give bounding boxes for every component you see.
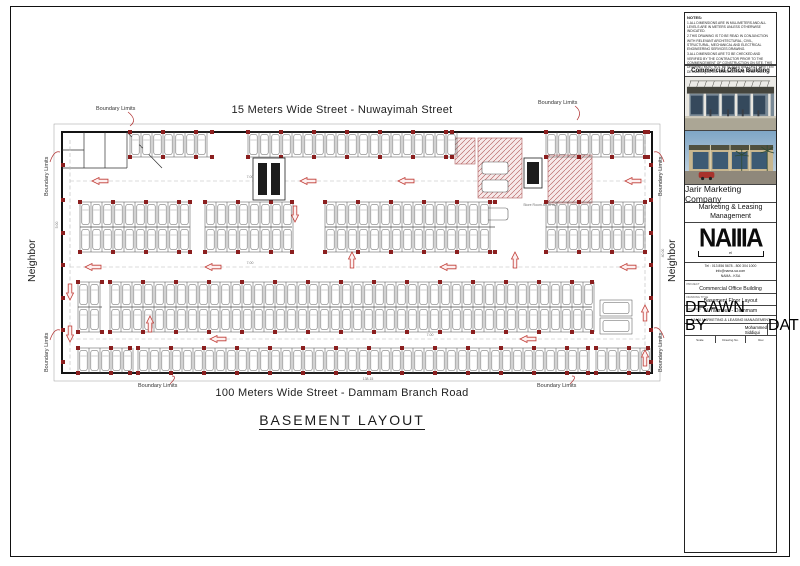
date-cell: DATE 12 Oct 2020 (767, 324, 800, 335)
drawn-value: Mohammed Siddiqui (745, 325, 767, 335)
svg-text:7.00: 7.00 (427, 333, 434, 337)
svg-text:5.00: 5.00 (55, 222, 59, 229)
company-name: Jarir Marketing Company (685, 185, 776, 203)
date-label: DATE (768, 317, 800, 335)
side-parking-stalls (600, 300, 632, 334)
basement-plan-svg: 138.1540.007.007.007.005.00Store Room A=… (0, 0, 800, 566)
boundary-label-right-upper: Boundary Limits (658, 157, 664, 196)
contact-box: Tel : 013 856 5678 - 800 304 1000 info@n… (685, 263, 776, 281)
svg-text:138.15: 138.15 (363, 377, 374, 381)
drawing-title-text: BASEMENT LAYOUT (259, 412, 425, 430)
project-label: PROJECT (687, 282, 700, 286)
boundary-label-top-right: Boundary Limits (538, 100, 577, 106)
footer-row: Scale Drawing No. Rev. (685, 336, 776, 343)
boundary-label-top-left: Boundary Limits (96, 106, 135, 112)
titleblock: NOTES: 1.ALL DIMENSIONS ARE IN MILLIMETE… (684, 12, 777, 553)
department-name: Marketing & Leasing Management (685, 203, 776, 223)
boundary-label-bottom-right: Boundary Limits (537, 383, 576, 389)
notes-box: NOTES: 1.ALL DIMENSIONS ARE IN MILLIMETE… (685, 13, 776, 65)
nama-logo-underline: el (698, 251, 764, 257)
neighbor-label-right: Neighbor (666, 239, 678, 282)
neighbor-label-left: Neighbor (26, 239, 38, 282)
drawn-cell: DRAWN BY Mohammed Siddiqui (685, 324, 767, 335)
nama-logo-text: NAIIIA (699, 227, 762, 250)
svg-text:7.00: 7.00 (247, 175, 254, 179)
nama-logo: NAIIIA el (685, 223, 776, 263)
boundary-label-left-lower: Boundary Limits (44, 333, 50, 372)
notes-title: NOTES: (687, 15, 774, 20)
boundary-label-bottom-left: Boundary Limits (138, 383, 177, 389)
svg-text:7.00: 7.00 (247, 261, 254, 265)
footer-rev: Rev. (745, 336, 776, 343)
contact-web: NAMA - KSA (721, 274, 740, 279)
svg-text:Store Room A=70 m2: Store Room A=70 m2 (523, 203, 557, 207)
building-render-2-image (685, 131, 776, 184)
building-render-1 (685, 77, 776, 131)
renders-header: Commercial Office Building (685, 66, 776, 77)
nama-logo-sub: el (727, 251, 734, 255)
note-item: 2.THIS DRAWING IS TO BE READ IN CONJUNCT… (687, 34, 774, 51)
bottom-street-label: 100 Meters Wide Street - Dammam Branch R… (0, 387, 684, 399)
svg-text:40.00: 40.00 (661, 249, 665, 258)
project-value: Commercial Office Building (699, 286, 761, 294)
drawing-title: BASEMENT LAYOUT (0, 412, 684, 428)
building-render-2 (685, 131, 776, 185)
building-render-1-image (685, 77, 776, 130)
drawn-label: DRAWN BY (685, 299, 745, 335)
drawn-date-row: DRAWN BY Mohammed Siddiqui DATE 12 Oct 2… (685, 324, 776, 336)
project-row: PROJECT Commercial Office Building (685, 281, 776, 294)
footer-scale: Scale (685, 336, 715, 343)
boundary-label-right-lower: Boundary Limits (658, 333, 664, 372)
boundary-label-left-upper: Boundary Limits (44, 157, 50, 196)
note-item: 1.ALL DIMENSIONS ARE IN MILLIMETERS AND … (687, 21, 774, 34)
footer-drawing-no: Drawing No. (715, 336, 746, 343)
